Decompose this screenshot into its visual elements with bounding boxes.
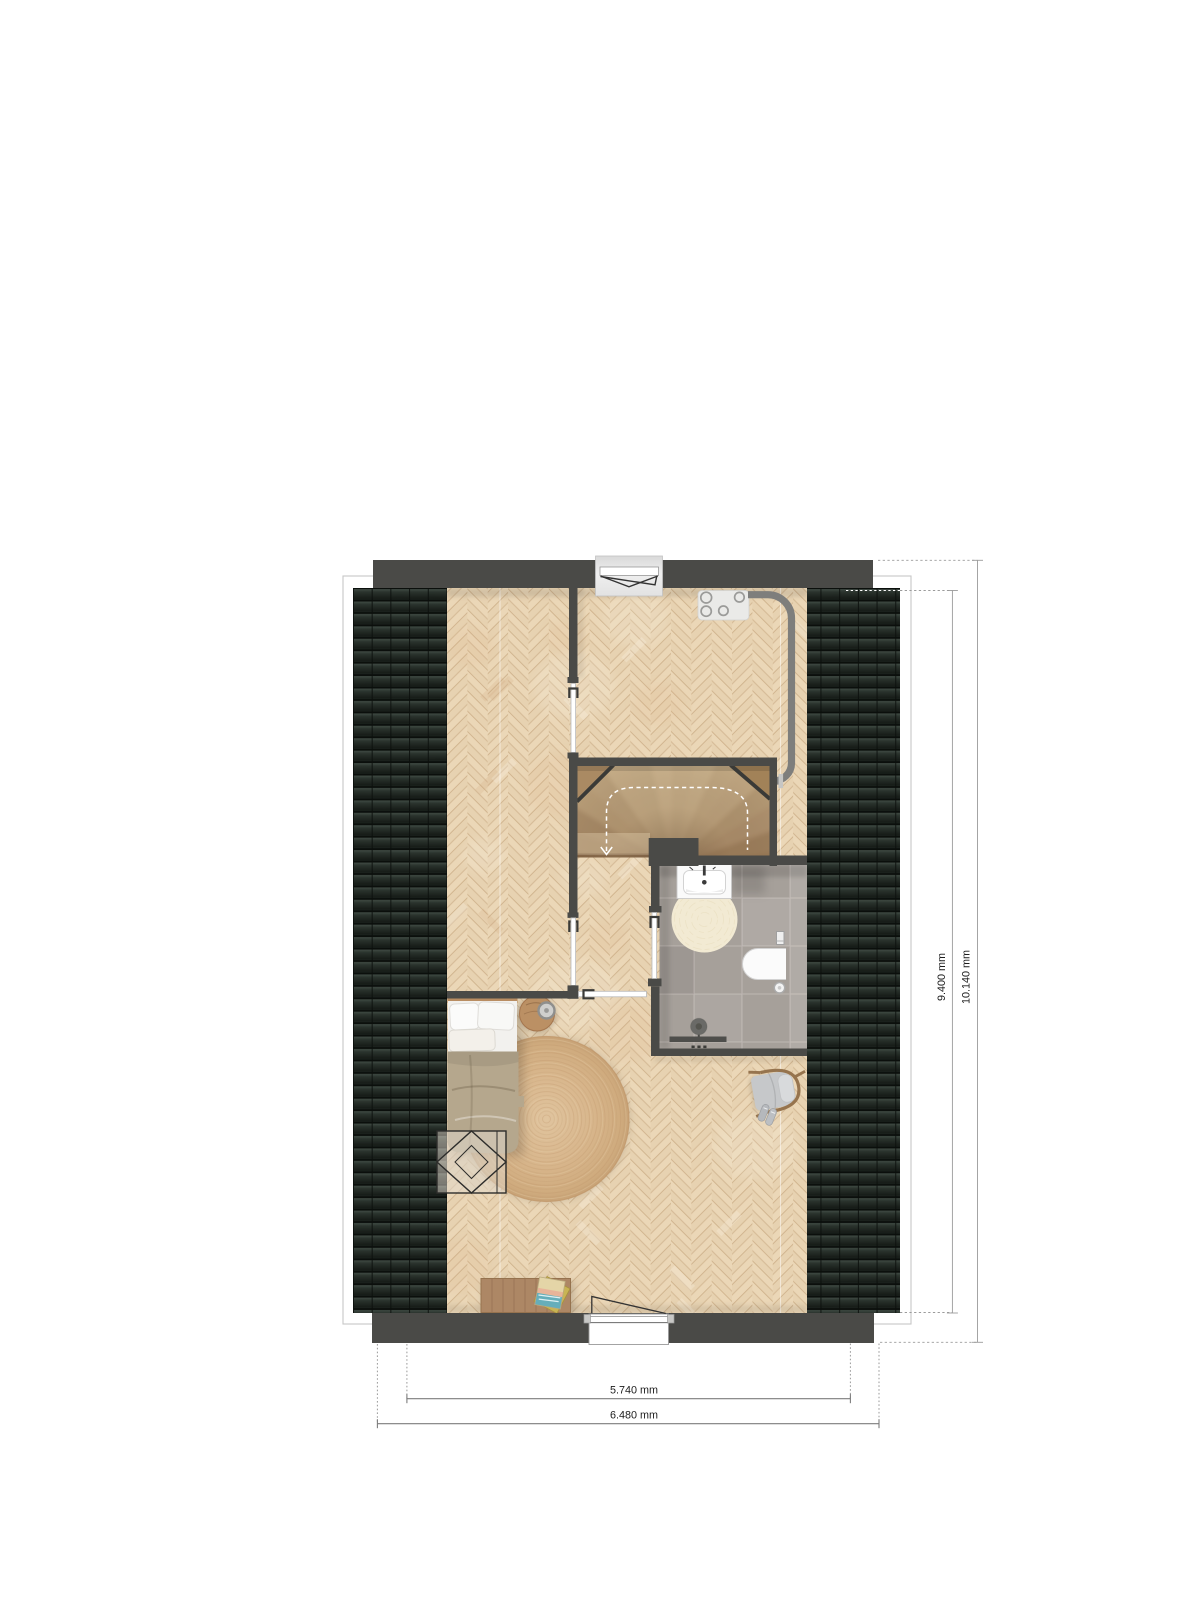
svg-text:5.740 mm: 5.740 mm: [610, 1385, 658, 1397]
svg-text:6.480 mm: 6.480 mm: [610, 1410, 658, 1422]
svg-text:9.400 mm: 9.400 mm: [936, 953, 948, 1001]
svg-text:10.140 mm: 10.140 mm: [961, 950, 973, 1004]
